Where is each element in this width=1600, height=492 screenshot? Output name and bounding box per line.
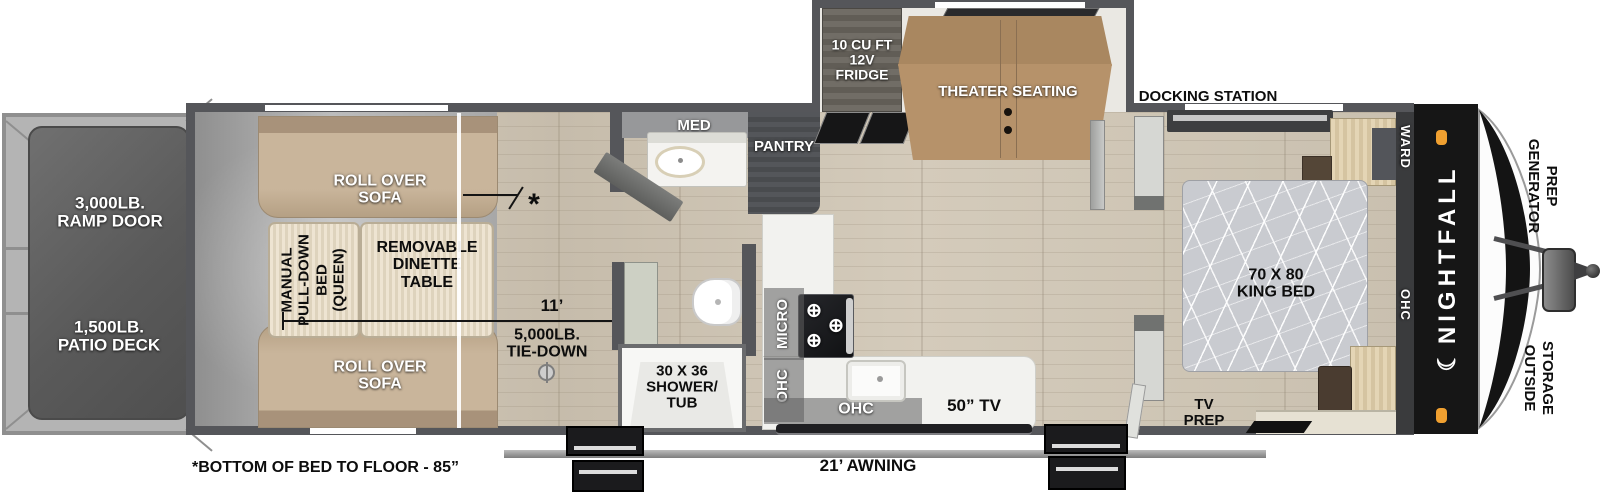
bedroom-ohc-label: OHC — [1398, 289, 1412, 321]
toilet-flush-icon — [715, 299, 721, 305]
propane-box — [1542, 248, 1576, 312]
burner-icon: ⊕ — [806, 332, 822, 353]
crescent-moon-icon: ☾ — [1434, 350, 1461, 372]
pantry-cabinet — [748, 112, 820, 214]
entry-step — [1048, 456, 1126, 490]
tv-50-label: 50” TV — [947, 397, 1001, 415]
step-tread — [1052, 444, 1119, 448]
tv-prep-label: TV PREP — [1184, 397, 1225, 429]
cupholder-icon — [1004, 108, 1012, 116]
slide-edge-line — [457, 113, 461, 428]
window — [1253, 438, 1303, 445]
length-label: 11’ — [541, 297, 564, 315]
theater-seating-label: THEATER SEATING — [938, 84, 1077, 100]
generator-prep-label-line2: PREP — [1543, 166, 1559, 207]
dimension-line — [283, 320, 622, 322]
entry-step — [1044, 424, 1128, 454]
ramp-door-panel — [28, 126, 190, 420]
entry-step — [572, 460, 644, 492]
ramp-frame-divider — [2, 247, 28, 250]
bed-height-footnote: *BOTTOM OF BED TO FLOOR - 85” — [192, 459, 459, 476]
ward-label: WARD — [1398, 125, 1412, 169]
stove-trim — [846, 298, 853, 354]
patio-deck-label: 1,500LB. PATIO DECK — [58, 319, 160, 356]
king-bed-label: 70 X 80 KING BED — [1237, 267, 1315, 302]
awning-label: 21’ AWNING — [820, 457, 917, 475]
hitch-ball-icon — [1586, 264, 1600, 278]
tie-down-anchor-slot — [546, 362, 548, 383]
window — [310, 428, 416, 434]
shower-tub-label: 30 X 36 SHOWER/ TUB — [646, 364, 718, 413]
tv-50-icon — [776, 424, 1032, 435]
fridge-label: 10 CU FT 12V FRIDGE — [832, 37, 893, 82]
partition-cap — [1134, 315, 1164, 331]
roll-over-sofa-bottom-label: ROLL OVER SOFA — [333, 359, 426, 394]
dinette-label: REMOVABLE DINETTE TABLE — [376, 239, 477, 291]
entry-step — [566, 426, 644, 456]
window — [772, 439, 1024, 446]
micro-label: MICRO — [775, 299, 791, 349]
pantry-label: PANTRY — [754, 139, 814, 155]
outside-storage-label-line2: STORAGE — [1539, 341, 1555, 415]
cupholder-icon — [1004, 126, 1012, 134]
theater-seating-back — [898, 16, 1112, 66]
tv-prep-tv-icon — [1246, 421, 1312, 433]
partition-panel — [1090, 120, 1105, 210]
bath-wall-right — [742, 244, 756, 356]
outside-storage-label-line1: OUTSIDE — [1521, 345, 1537, 412]
clearance-light-icon — [1436, 130, 1447, 145]
docking-station-label: DOCKING STATION — [1139, 89, 1278, 105]
burner-icon: ⊕ — [806, 302, 822, 323]
burner-icon: ⊕ — [828, 317, 844, 338]
kitchen-sink-icon — [846, 360, 906, 402]
docking-station-unit — [1167, 110, 1333, 132]
lav-faucet-icon — [678, 158, 683, 163]
step-tread — [574, 446, 636, 450]
bath-wall-stub — [612, 262, 624, 350]
step-tread — [579, 470, 636, 474]
tie-down-label: 5,000LB. TIE-DOWN — [507, 327, 588, 362]
generator-prep-label-line1: GENERATOR — [1525, 139, 1541, 233]
step-tread — [1056, 467, 1118, 471]
dimension-tick-left — [282, 312, 284, 330]
floorplan: 3,000LB. RAMP DOOR 1,500LB. PATIO DECK R… — [0, 0, 1600, 492]
ramp-door-label: 3,000LB. RAMP DOOR — [57, 195, 162, 232]
bath-pocket-wall — [624, 262, 658, 348]
docking-station-band — [1173, 115, 1327, 121]
callout-line — [463, 194, 518, 196]
pull-down-bed-label: MANUAL PULL-DOWN BED (QUEEN) — [279, 234, 348, 326]
ohc-horizontal-label: OHC — [838, 400, 874, 417]
bedside-box — [1302, 156, 1332, 182]
brand-logo: ☾NIGHTFALL — [1435, 164, 1461, 371]
ward-cabinet-front — [1372, 128, 1396, 180]
roll-over-sofa-top-label: ROLL OVER SOFA — [333, 173, 426, 208]
clearance-light-icon — [1436, 408, 1447, 423]
ramp-frame-divider — [2, 312, 28, 315]
asterisk-mark: * — [528, 189, 540, 221]
sink-drain-icon — [877, 376, 883, 382]
partition-cap — [1134, 196, 1164, 210]
window — [265, 105, 448, 111]
